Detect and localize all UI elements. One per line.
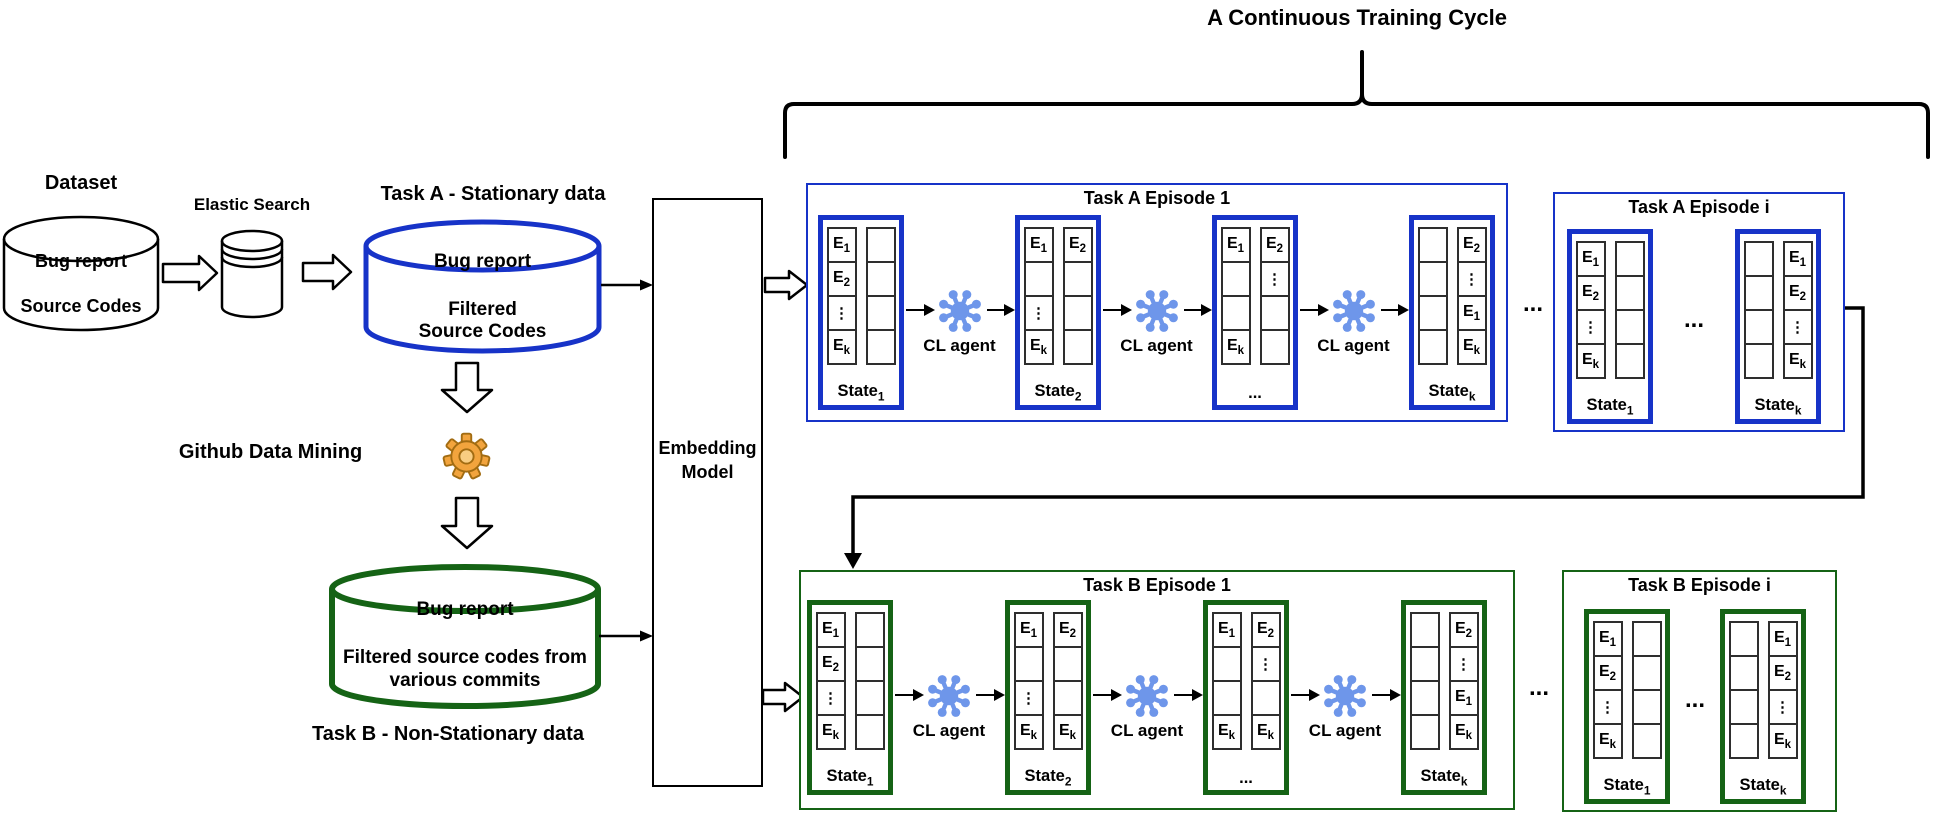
embedding-cell: [855, 646, 885, 682]
embedding-cell: [1063, 261, 1093, 297]
arrow-right-icon: [976, 694, 1003, 696]
cl-agent-icon: [1331, 288, 1377, 334]
arrow-right-icon: [1184, 309, 1211, 311]
embedding-cell: [1632, 689, 1662, 725]
embedding-cell: E2: [1053, 612, 1083, 648]
embedding-cell: E1: [816, 612, 846, 648]
embedding-cell: E2: [1449, 612, 1479, 648]
cl-agent-icon: [1124, 673, 1170, 719]
embedding-cell: [866, 261, 896, 297]
elastic-search-label: Elastic Search: [172, 195, 332, 215]
embedding-model-line-2: Model: [650, 462, 765, 483]
embedding-cell: [855, 612, 885, 648]
dataset-line-1: Bug report: [4, 251, 158, 272]
task-a-episode-i-box: Task A Episode iE1E2⋮EkState1...E1E2⋮EkS…: [1553, 192, 1845, 432]
embedding-cell: [1418, 295, 1448, 331]
embedding-cell: Ek: [816, 714, 846, 750]
embedding-cell: Ek: [1024, 329, 1054, 365]
cl-agent-icon: [937, 288, 983, 334]
embedding-cell: [866, 329, 896, 365]
ellipsis: ...: [1518, 674, 1560, 702]
episode-title: Task A Episode i: [1555, 197, 1843, 218]
embedding-cell: E1: [1576, 241, 1606, 277]
state-label: Statek: [1740, 396, 1816, 417]
embedding-cell: E1: [1457, 295, 1487, 331]
embedding-cell: [1744, 343, 1774, 379]
embedding-cell: [1410, 680, 1440, 716]
task-b-episode-i-box: Task B Episode iE1E2⋮EkState1...E1E2⋮EkS…: [1562, 570, 1837, 812]
arrow-es-to-taska: [303, 255, 351, 289]
arrow-right-icon: [1291, 694, 1318, 696]
cl-agent-connector: CL agent: [893, 600, 1005, 795]
embedding-cell: Ek: [1053, 714, 1083, 750]
cl-agent-icon: [926, 673, 972, 719]
embedding-cell: Ek: [1014, 714, 1044, 750]
episode-row: E1E2⋮EkState1CL agentE1⋮EkE2State2CL age…: [818, 215, 1495, 410]
embedding-cell: [1632, 621, 1662, 657]
task-b-line-2: Filtered source codes from: [332, 647, 598, 669]
embedding-cell: [1729, 723, 1759, 759]
embedding-cell: ⋮: [1251, 646, 1281, 682]
embedding-cell: ⋮: [1014, 680, 1044, 716]
embedding-cell: [1615, 241, 1645, 277]
cl-agent-connector: CL agent: [904, 215, 1015, 410]
embedding-cell: ⋮: [1449, 646, 1479, 682]
task-a-title: Task A - Stationary data: [355, 183, 631, 206]
embedding-cell: Ek: [1457, 329, 1487, 365]
embedding-cell: E2: [827, 261, 857, 297]
embedding-cell: E1: [1221, 227, 1251, 263]
task-a-line-1: Bug report: [366, 251, 599, 273]
embedding-cell: [1212, 646, 1242, 682]
state-label: ...: [1208, 769, 1284, 788]
state-block: E2⋮E1EkStatek: [1409, 215, 1495, 410]
gear-icon: [438, 427, 495, 484]
task-b-line-3: various commits: [332, 670, 598, 692]
ellipsis: ...: [1512, 290, 1554, 318]
state-label: State1: [1572, 396, 1648, 417]
embedding-cell: [1744, 241, 1774, 277]
arrow-right-icon: [1174, 694, 1201, 696]
thin-arrows: [599, 280, 653, 642]
embedding-cell: E2: [1576, 275, 1606, 311]
episode-title: Task A Episode 1: [808, 188, 1506, 209]
embedding-cell: [1221, 295, 1251, 331]
github-mining-label: Github Data Mining: [148, 441, 393, 464]
dataset-line-2: Source Codes: [4, 296, 158, 317]
embedding-cell: ⋮: [1768, 689, 1798, 725]
embedding-cell: Ek: [1251, 714, 1281, 750]
task-a-episode-1-box: Task A Episode 1E1E2⋮EkState1CL agentE1⋮…: [806, 183, 1508, 422]
state-block: E1E2⋮EkStatek: [1735, 229, 1821, 424]
episode-title: Task B Episode i: [1564, 575, 1835, 596]
state-label: Statek: [1725, 776, 1801, 797]
embedding-cell: E2: [1593, 655, 1623, 691]
task-a-line-3: Source Codes: [366, 321, 599, 343]
ellipsis: ...: [1670, 609, 1720, 804]
cl-agent-connector: CL agent: [1091, 600, 1203, 795]
state-block: E1⋮EkE2EkState2: [1005, 600, 1091, 795]
embedding-model-line-1: Embedding: [650, 438, 765, 459]
embedding-cell: Ek: [1212, 714, 1242, 750]
embedding-cell: E1: [1449, 680, 1479, 716]
embedding-cell: [1744, 275, 1774, 311]
embedding-cell: E2: [1768, 655, 1798, 691]
embedding-cell: [1410, 714, 1440, 750]
state-label: State2: [1010, 767, 1086, 788]
embedding-cell: ⋮: [816, 680, 846, 716]
cl-agent-icon: [1322, 673, 1368, 719]
cl-agent-label: CL agent: [923, 336, 995, 356]
embedding-cell: [1729, 655, 1759, 691]
state-label: State2: [1020, 382, 1096, 403]
arrow-right-icon: [987, 309, 1014, 311]
embedding-cell: [1063, 295, 1093, 331]
arrow-embedding-to-episode-a: [765, 271, 807, 299]
state-label: Statek: [1414, 382, 1490, 403]
arrow-gear-to-taskb: [442, 498, 492, 548]
embedding-cell: E1: [1768, 621, 1798, 657]
embedding-cell: Ek: [1593, 723, 1623, 759]
state-label: State1: [1589, 776, 1665, 797]
embedding-cell: Ek: [827, 329, 857, 365]
embedding-cell: [1410, 612, 1440, 648]
embedding-cell: E1: [1024, 227, 1054, 263]
cl-agent-connector: CL agent: [1289, 600, 1401, 795]
embedding-cell: [1053, 680, 1083, 716]
arrow-right-icon: [906, 309, 933, 311]
episode-row: E1E2⋮EkState1...E1E2⋮EkStatek: [1584, 609, 1806, 804]
embedding-cell: ⋮: [827, 295, 857, 331]
state-block: E1E2⋮EkState1: [807, 600, 893, 795]
embedding-cell: E1: [1212, 612, 1242, 648]
embedding-cell: ⋮: [1260, 261, 1290, 297]
embedding-cell: Ek: [1783, 343, 1813, 379]
state-block: E1E2⋮EkStatek: [1720, 609, 1806, 804]
arrow-right-icon: [1372, 694, 1399, 696]
arrow-right-icon: [1103, 309, 1130, 311]
cl-agent-label: CL agent: [1111, 721, 1183, 741]
embedding-cell: [1053, 646, 1083, 682]
state-block: E2⋮E1EkStatek: [1401, 600, 1487, 795]
embedding-cell: [1615, 309, 1645, 345]
state-block: E1EkE2⋮Ek...: [1203, 600, 1289, 795]
embedding-cell: Ek: [1221, 329, 1251, 365]
diagram-canvas: A Continuous Training Cycle Dataset Bug …: [0, 0, 1937, 813]
embedding-cell: Ek: [1768, 723, 1798, 759]
arrow-dataset-to-es: [163, 256, 217, 290]
embedding-cell: E2: [816, 646, 846, 682]
arrow-right-icon: [895, 694, 922, 696]
embedding-cell: [1024, 261, 1054, 297]
ellipsis: ...: [1653, 229, 1735, 424]
state-block: E1E2⋮EkState1: [1567, 229, 1653, 424]
embedding-cell: E1: [1014, 612, 1044, 648]
task-b-line-1: Bug report: [332, 599, 598, 621]
embedding-cell: [1615, 275, 1645, 311]
embedding-cell: Ek: [1576, 343, 1606, 379]
embedding-cell: E2: [1783, 275, 1813, 311]
task-a-line-2: Filtered: [366, 299, 599, 321]
embedding-cell: E2: [1457, 227, 1487, 263]
cl-agent-label: CL agent: [1120, 336, 1192, 356]
embedding-cell: E1: [1783, 241, 1813, 277]
state-label: State1: [823, 382, 899, 403]
state-block: E1E2⋮EkState1: [818, 215, 904, 410]
state-label: ...: [1217, 384, 1293, 403]
task-b-episode-1-box: Task B Episode 1E1E2⋮EkState1CL agentE1⋮…: [799, 570, 1515, 810]
embedding-cell: [1418, 261, 1448, 297]
task-b-title: Task B - Non-Stationary data: [312, 723, 584, 746]
state-block: E1E2⋮EkState1: [1584, 609, 1670, 804]
embedding-cell: [1014, 646, 1044, 682]
embedding-cell: [1410, 646, 1440, 682]
state-label: State1: [812, 767, 888, 788]
episode-row: E1E2⋮EkState1...E1E2⋮EkStatek: [1567, 229, 1821, 424]
cl-agent-icon: [1134, 288, 1180, 334]
embedding-cell: [866, 227, 896, 263]
embedding-cell: E2: [1260, 227, 1290, 263]
embedding-cell: E2: [1251, 612, 1281, 648]
cl-agent-label: CL agent: [913, 721, 985, 741]
embedding-cell: [1260, 295, 1290, 331]
embedding-cell: [1418, 329, 1448, 365]
training-cycle-brace: [785, 52, 1928, 157]
arrow-right-icon: [1300, 309, 1327, 311]
embedding-cell: ⋮: [1593, 689, 1623, 725]
embedding-cell: [855, 680, 885, 716]
embedding-cell: ⋮: [1024, 295, 1054, 331]
embedding-cell: [1063, 329, 1093, 365]
cl-agent-connector: CL agent: [1101, 215, 1212, 410]
cl-agent-label: CL agent: [1309, 721, 1381, 741]
embedding-cell: [1221, 261, 1251, 297]
embedding-cell: [1744, 309, 1774, 345]
page-title: A Continuous Training Cycle: [1137, 5, 1577, 30]
embedding-cell: [1260, 329, 1290, 365]
embedding-cell: E2: [1063, 227, 1093, 263]
arrow-right-icon: [1381, 309, 1408, 311]
arrow-taska-to-gear: [442, 363, 492, 412]
embedding-cell: [1212, 680, 1242, 716]
cl-agent-label: CL agent: [1317, 336, 1389, 356]
embedding-cell: ⋮: [1457, 261, 1487, 297]
embedding-cell: [855, 714, 885, 750]
episode-title: Task B Episode 1: [801, 575, 1513, 596]
state-block: E1EkE2⋮...: [1212, 215, 1298, 410]
embedding-cell: E1: [1593, 621, 1623, 657]
episode-row: E1E2⋮EkState1CL agentE1⋮EkE2EkState2CL a…: [807, 600, 1487, 795]
dataset-label: Dataset: [18, 172, 144, 195]
embedding-cell: ⋮: [1783, 309, 1813, 345]
embedding-cell: ⋮: [1576, 309, 1606, 345]
embedding-cell: [1615, 343, 1645, 379]
arrow-embedding-to-episode-b: [763, 683, 803, 711]
state-label: Statek: [1406, 767, 1482, 788]
state-block: E1⋮EkE2State2: [1015, 215, 1101, 410]
embedding-cell: [1418, 227, 1448, 263]
embedding-cell: Ek: [1449, 714, 1479, 750]
embedding-cell: [1729, 689, 1759, 725]
cl-agent-connector: CL agent: [1298, 215, 1409, 410]
arrow-right-icon: [1093, 694, 1120, 696]
embedding-cell: [1251, 680, 1281, 716]
embedding-model-box: [652, 198, 763, 787]
elastic-search-cylinder: [222, 231, 282, 317]
embedding-cell: [1632, 655, 1662, 691]
embedding-cell: E1: [827, 227, 857, 263]
embedding-cell: [1632, 723, 1662, 759]
embedding-cell: [1729, 621, 1759, 657]
embedding-cell: [866, 295, 896, 331]
